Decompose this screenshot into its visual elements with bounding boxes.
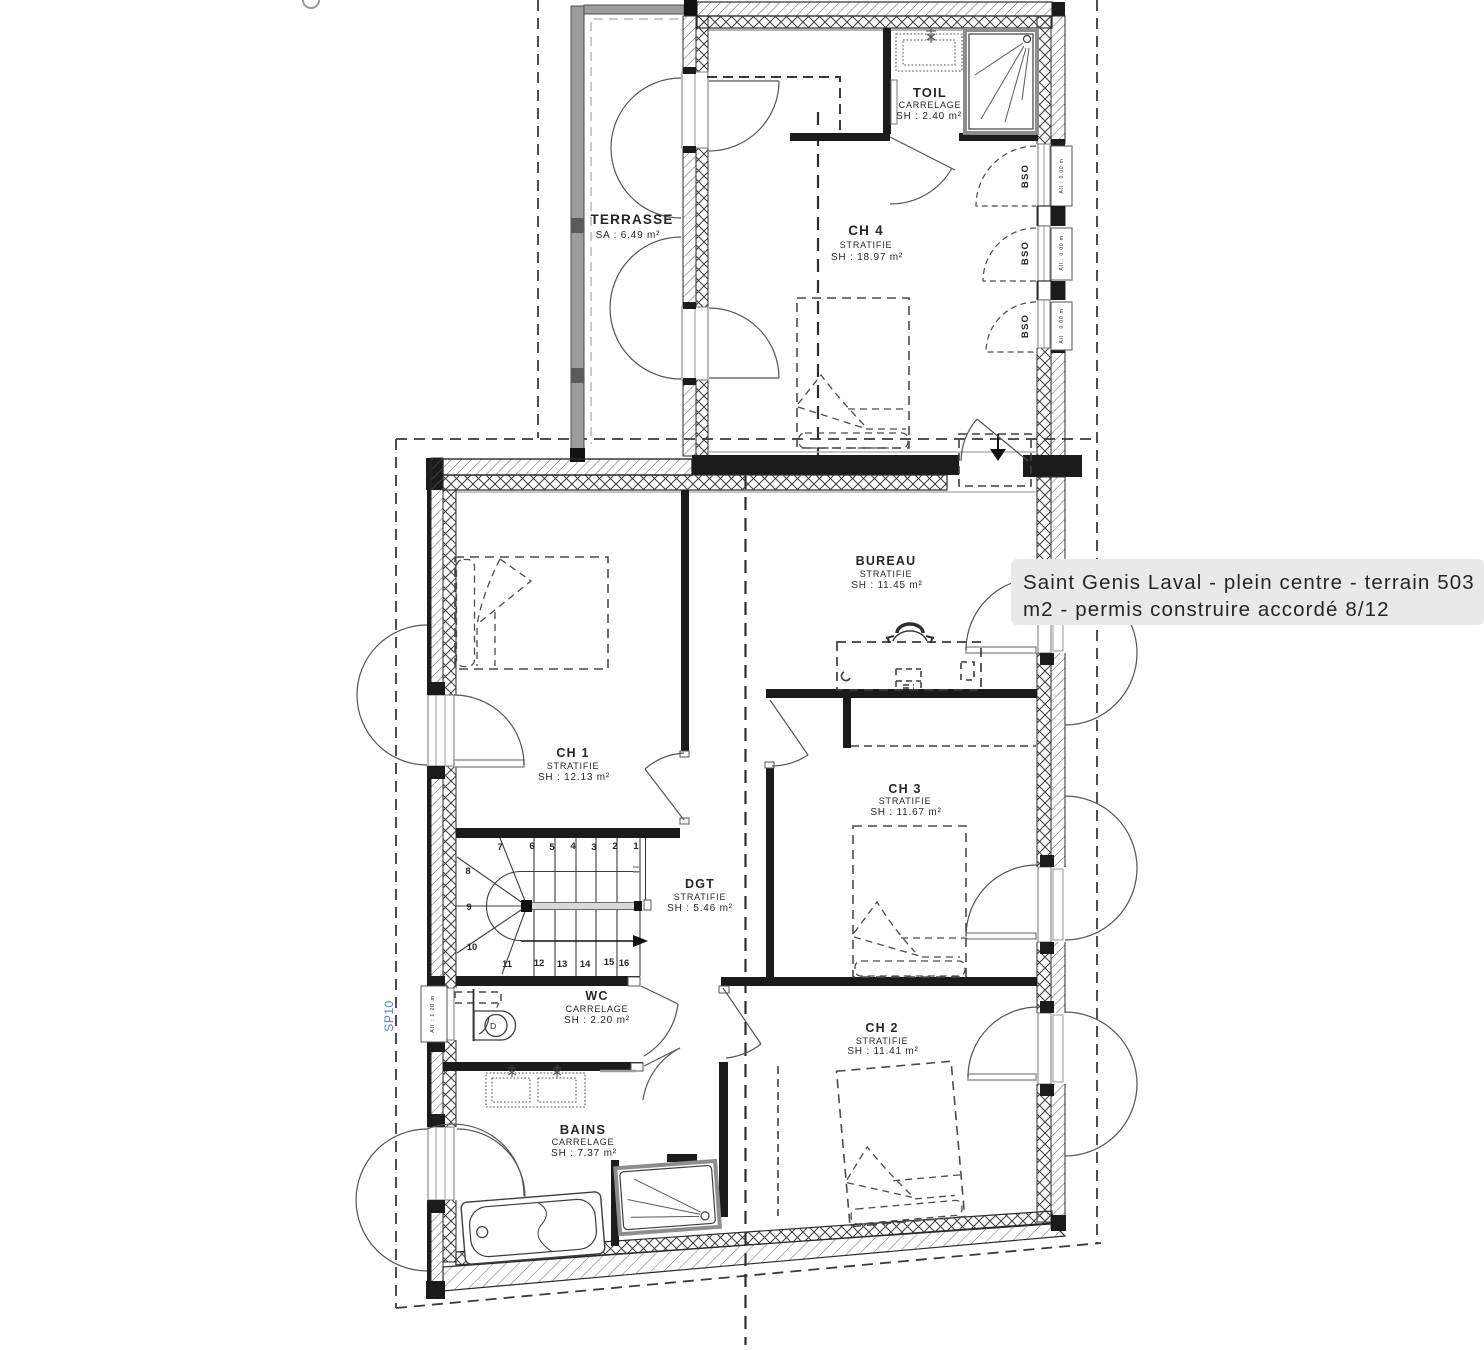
svg-text:SH : 2.20 m²: SH : 2.20 m²	[564, 1015, 630, 1026]
svg-text:AII : 0.00 m: AII : 0.00 m	[1059, 308, 1065, 343]
svg-text:SH : 7.37 m²: SH : 7.37 m²	[551, 1148, 617, 1159]
svg-text:SH : 11.41 m²: SH : 11.41 m²	[847, 1046, 918, 1057]
svg-text:AII : 0.00 m: AII : 0.00 m	[1059, 235, 1065, 270]
svg-text:STRATIFIE: STRATIFIE	[674, 892, 727, 902]
svg-text:SH : 11.45 m²: SH : 11.45 m²	[851, 580, 922, 591]
svg-text:10: 10	[467, 942, 478, 953]
svg-text:STRATIFIE: STRATIFIE	[840, 240, 893, 250]
svg-text:15: 15	[604, 957, 615, 968]
svg-text:4: 4	[570, 841, 576, 852]
svg-text:CH 1: CH 1	[556, 746, 589, 760]
svg-text:Saint Genis Laval - plein cent: Saint Genis Laval - plein centre - terra…	[1023, 571, 1475, 594]
svg-text:BSO: BSO	[1020, 164, 1031, 188]
svg-text:12: 12	[534, 958, 545, 969]
svg-text:BAINS: BAINS	[560, 1122, 606, 1137]
svg-text:BSO: BSO	[1020, 314, 1031, 338]
svg-text:TOIL: TOIL	[913, 85, 947, 100]
svg-text:CARRELAGE: CARRELAGE	[552, 1137, 615, 1147]
svg-text:CH 2: CH 2	[865, 1021, 898, 1035]
svg-text:SH : 18.97 m²: SH : 18.97 m²	[831, 252, 903, 263]
svg-text:SH : 5.46 m²: SH : 5.46 m²	[667, 903, 733, 914]
svg-text:9: 9	[466, 902, 471, 913]
svg-text:AII : 1.20 m: AII : 1.20 m	[430, 995, 436, 1033]
svg-text:CH 4: CH 4	[848, 223, 884, 238]
svg-text:5: 5	[549, 842, 555, 853]
svg-text:CARRELAGE: CARRELAGE	[899, 100, 962, 110]
svg-text:13: 13	[557, 959, 568, 970]
svg-text:11: 11	[502, 959, 513, 970]
svg-text:TERRASSE: TERRASSE	[590, 212, 673, 227]
svg-text:SA : 6.49 m²: SA : 6.49 m²	[596, 230, 661, 241]
svg-text:SH : 12.13 m²: SH : 12.13 m²	[538, 772, 610, 783]
svg-text:8: 8	[465, 866, 470, 877]
svg-text:SH : 2.40 m²: SH : 2.40 m²	[896, 111, 962, 122]
svg-text:CARRELAGE: CARRELAGE	[566, 1004, 629, 1014]
svg-text:AII : 0.00 m: AII : 0.00 m	[1059, 158, 1065, 193]
svg-text:6: 6	[529, 841, 534, 852]
svg-text:STRATIFIE: STRATIFIE	[879, 796, 932, 806]
svg-text:CH 3: CH 3	[888, 782, 921, 796]
svg-text:STRATIFIE: STRATIFIE	[856, 1036, 909, 1046]
svg-text:BUREAU: BUREAU	[856, 554, 917, 568]
svg-text:WC: WC	[585, 989, 608, 1003]
svg-text:14: 14	[580, 959, 591, 970]
svg-text:7: 7	[497, 842, 502, 853]
svg-text:3: 3	[591, 842, 596, 853]
svg-text:STRATIFIE: STRATIFIE	[860, 569, 913, 579]
svg-text:DGT: DGT	[685, 877, 715, 891]
svg-text:D: D	[490, 1021, 496, 1031]
svg-text:m2 - permis construire accordé: m2 - permis construire accordé 8/12	[1023, 598, 1390, 621]
svg-text:STRATIFIE: STRATIFIE	[547, 761, 600, 771]
svg-text:BSO: BSO	[1020, 241, 1031, 265]
svg-text:1: 1	[633, 841, 639, 852]
svg-text:2: 2	[612, 841, 617, 852]
svg-text:SH : 11.67 m²: SH : 11.67 m²	[870, 807, 941, 818]
svg-text:SP10: SP10	[382, 1000, 396, 1031]
svg-text:16: 16	[619, 958, 630, 969]
